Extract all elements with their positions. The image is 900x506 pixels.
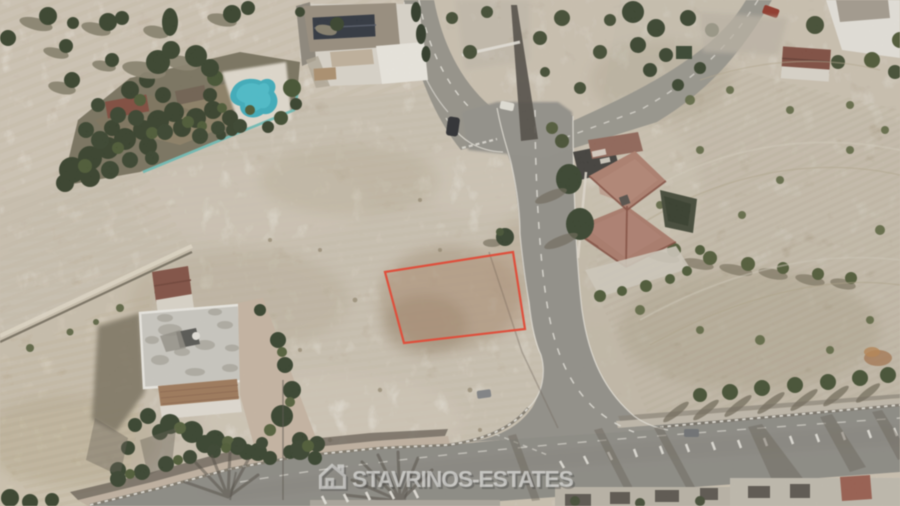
svg-text:STAVRINOS-ESTATES: STAVRINOS-ESTATES bbox=[352, 466, 574, 492]
